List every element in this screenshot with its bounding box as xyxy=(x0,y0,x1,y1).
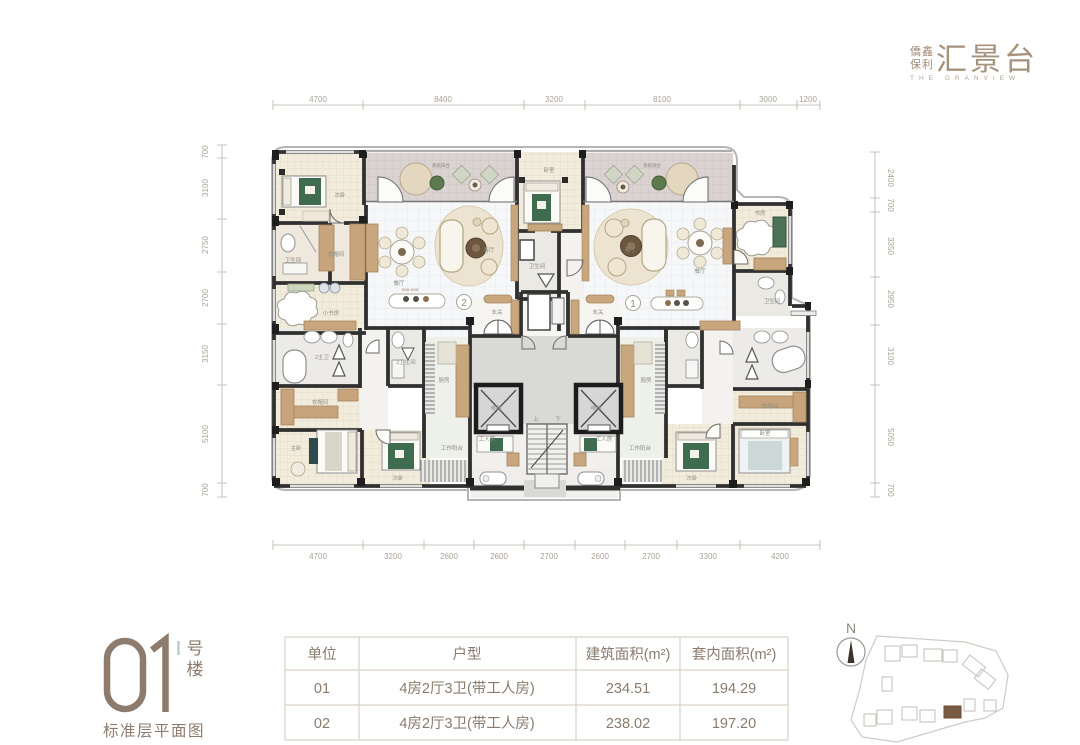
svg-text:2600: 2600 xyxy=(440,552,458,561)
svg-text:3200: 3200 xyxy=(384,552,402,561)
svg-text:卧室: 卧室 xyxy=(759,429,771,437)
svg-text:XXX XXX: XXX XXX xyxy=(401,287,418,292)
svg-text:小书房: 小书房 xyxy=(323,309,340,317)
svg-text:8400: 8400 xyxy=(434,95,452,104)
svg-text:1: 1 xyxy=(630,299,636,310)
svg-text:衣帽间: 衣帽间 xyxy=(762,402,779,410)
svg-text:僑鑫: 僑鑫 xyxy=(910,44,934,58)
svg-text:上: 上 xyxy=(533,415,539,423)
svg-text:02: 02 xyxy=(314,716,330,732)
svg-text:衣帽间: 衣帽间 xyxy=(328,250,345,258)
svg-text:悬挑阳台: 悬挑阳台 xyxy=(432,162,450,169)
svg-text:3350: 3350 xyxy=(886,237,895,255)
svg-text:工人房: 工人房 xyxy=(479,435,496,443)
svg-text:卫生间: 卫生间 xyxy=(529,262,546,270)
svg-text:餐厅: 餐厅 xyxy=(393,279,405,287)
svg-text:套内面积(m²): 套内面积(m²) xyxy=(692,646,777,663)
svg-text:5050: 5050 xyxy=(886,428,895,446)
svg-text:客厅: 客厅 xyxy=(483,246,495,254)
svg-text:悬挑阳台: 悬挑阳台 xyxy=(643,162,661,169)
svg-text:书房: 书房 xyxy=(754,209,766,217)
svg-text:单位: 单位 xyxy=(308,646,337,663)
svg-text:THE GRANVIEW: THE GRANVIEW xyxy=(910,75,1020,82)
svg-text:次卧: 次卧 xyxy=(334,191,346,199)
svg-text:4房2厅3卫(带工人房): 4房2厅3卫(带工人房) xyxy=(399,715,534,732)
svg-text:保利: 保利 xyxy=(910,57,934,71)
svg-text:玄关: 玄关 xyxy=(491,308,503,316)
svg-text:5100: 5100 xyxy=(201,425,210,443)
svg-text:卫生间: 卫生间 xyxy=(285,256,302,264)
svg-text:电梯: 电梯 xyxy=(490,404,502,412)
svg-text:1200: 1200 xyxy=(799,95,817,104)
svg-text:2750: 2750 xyxy=(201,236,210,254)
svg-text:标准层平面图: 标准层平面图 xyxy=(103,722,205,740)
svg-text:建筑面积(m²): 建筑面积(m²) xyxy=(586,646,671,663)
svg-text:2700: 2700 xyxy=(201,289,210,307)
svg-text:工人房: 工人房 xyxy=(596,435,613,443)
svg-text:01: 01 xyxy=(314,681,330,697)
svg-text:238.02: 238.02 xyxy=(606,716,650,732)
svg-text:4700: 4700 xyxy=(309,552,327,561)
svg-text:电梯: 电梯 xyxy=(590,404,602,412)
svg-text:4200: 4200 xyxy=(771,552,789,561)
svg-text:2: 2 xyxy=(461,298,467,309)
svg-text:次卧: 次卧 xyxy=(392,474,404,482)
svg-text:3000: 3000 xyxy=(759,95,777,104)
svg-text:194.29: 194.29 xyxy=(712,681,756,697)
svg-text:户型: 户型 xyxy=(453,646,482,663)
svg-text:2400: 2400 xyxy=(886,169,895,187)
svg-text:客厅: 客厅 xyxy=(624,246,636,254)
svg-text:工作阳台: 工作阳台 xyxy=(441,444,464,452)
svg-text:号: 号 xyxy=(187,639,204,658)
svg-text:餐厅: 餐厅 xyxy=(694,267,706,275)
svg-text:卧室: 卧室 xyxy=(543,166,555,174)
svg-text:2600: 2600 xyxy=(490,552,508,561)
svg-text:700: 700 xyxy=(201,483,210,497)
svg-text:楼: 楼 xyxy=(187,660,204,679)
svg-text:厨房: 厨房 xyxy=(438,376,450,384)
svg-text:700: 700 xyxy=(886,198,895,212)
svg-text:4房2厅3卫(带工人房): 4房2厅3卫(带工人房) xyxy=(399,680,534,697)
svg-text:700: 700 xyxy=(886,483,895,497)
svg-text:8100: 8100 xyxy=(653,95,671,104)
svg-text:N: N xyxy=(846,620,856,636)
svg-text:玄关: 玄关 xyxy=(592,308,604,316)
svg-text:次卧: 次卧 xyxy=(686,474,698,482)
svg-text:4700: 4700 xyxy=(309,95,327,104)
svg-text:3300: 3300 xyxy=(699,552,717,561)
svg-text:2700: 2700 xyxy=(642,552,660,561)
svg-text:卫生间: 卫生间 xyxy=(764,297,781,305)
svg-text:2卫生间: 2卫生间 xyxy=(396,358,416,366)
svg-text:厨房: 厨房 xyxy=(640,376,652,384)
svg-text:下: 下 xyxy=(555,416,561,423)
svg-text:700: 700 xyxy=(201,145,210,159)
svg-text:工作阳台: 工作阳台 xyxy=(629,444,652,452)
svg-text:234.51: 234.51 xyxy=(606,681,650,697)
svg-text:3200: 3200 xyxy=(545,95,563,104)
svg-text:2主卫: 2主卫 xyxy=(315,353,330,361)
svg-text:主卧: 主卧 xyxy=(290,444,302,452)
svg-text:2950: 2950 xyxy=(886,290,895,308)
svg-text:3100: 3100 xyxy=(201,179,210,197)
svg-text:2700: 2700 xyxy=(540,552,558,561)
svg-text:衣帽间: 衣帽间 xyxy=(312,398,329,406)
svg-text:3100: 3100 xyxy=(886,347,895,365)
svg-text:3150: 3150 xyxy=(201,345,210,363)
svg-text:汇景台: 汇景台 xyxy=(936,42,1038,77)
svg-text:197.20: 197.20 xyxy=(712,716,756,732)
svg-text:2600: 2600 xyxy=(591,552,609,561)
